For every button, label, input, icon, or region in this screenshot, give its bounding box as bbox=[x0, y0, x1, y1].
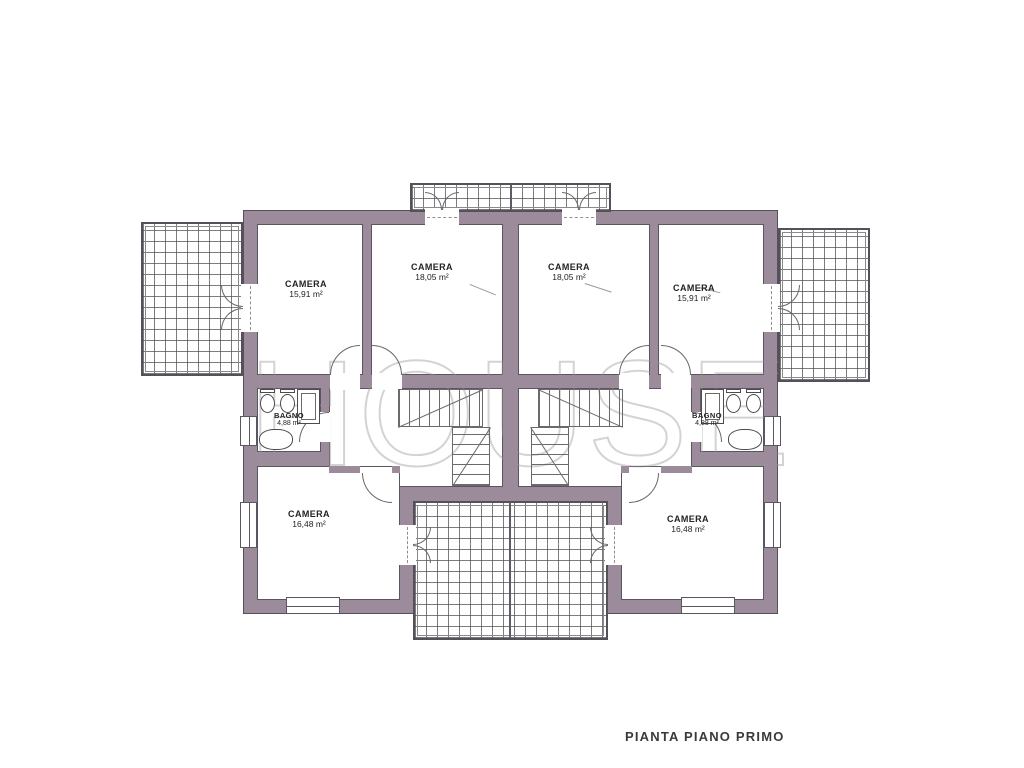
floor-plan-page: HOUSE bbox=[0, 0, 1024, 768]
room-name: BAGNO bbox=[692, 412, 722, 420]
door-opening-camera-tml bbox=[372, 373, 402, 390]
window-left-bagno bbox=[240, 416, 257, 446]
room-name: CAMERA bbox=[548, 262, 590, 272]
door-opening-top-balcony-left bbox=[425, 208, 459, 226]
door-opening-left-terrace bbox=[241, 284, 259, 332]
room-label-bagno-right: BAGNO 4,88 m² bbox=[692, 412, 722, 428]
room-name: BAGNO bbox=[274, 412, 304, 420]
room-name: CAMERA bbox=[288, 509, 330, 519]
room-label-camera-top-midleft: CAMERA 18,05 m² bbox=[411, 262, 453, 282]
room-name: CAMERA bbox=[411, 262, 453, 272]
door-opening-top-balcony-right bbox=[562, 208, 596, 226]
bidet-fixture bbox=[726, 394, 741, 413]
bidet-tank bbox=[280, 389, 295, 393]
room-label-bagno-left: BAGNO 4,88 m² bbox=[274, 412, 304, 428]
wall-segment bbox=[392, 466, 400, 473]
room-area: 4,88 m² bbox=[692, 420, 722, 428]
window-bottom-left-room bbox=[286, 597, 340, 614]
room-area: 18,05 m² bbox=[411, 272, 453, 282]
wall-segment bbox=[621, 466, 629, 473]
room-label-camera-top-right: CAMERA 15,91 m² bbox=[673, 283, 715, 303]
bidet-tank bbox=[726, 389, 741, 393]
door-opening-camera-tmr bbox=[619, 373, 649, 390]
wc-tank bbox=[260, 389, 275, 393]
terrace-right bbox=[778, 228, 870, 382]
door-opening-camera-tl bbox=[330, 373, 360, 390]
room-name: CAMERA bbox=[673, 283, 715, 293]
wc-fixture bbox=[260, 394, 275, 413]
wc-fixture bbox=[746, 394, 761, 413]
room-label-camera-bottom-left: CAMERA 16,48 m² bbox=[288, 509, 330, 529]
room-name: CAMERA bbox=[285, 279, 327, 289]
wc-tank bbox=[746, 389, 761, 393]
room-label-camera-top-midright: CAMERA 18,05 m² bbox=[548, 262, 590, 282]
door-opening-camera-tr bbox=[661, 373, 691, 390]
plan-caption: PIANTA PIANO PRIMO bbox=[625, 729, 785, 744]
window-left-bottom-room bbox=[240, 502, 257, 548]
room-area: 16,48 m² bbox=[288, 519, 330, 529]
window-right-bottom-room bbox=[764, 502, 781, 548]
bathtub-fixture bbox=[728, 429, 762, 450]
room-label-camera-top-left: CAMERA 15,91 m² bbox=[285, 279, 327, 299]
bathtub-fixture bbox=[259, 429, 293, 450]
window-right-bagno bbox=[764, 416, 781, 446]
room-area: 15,91 m² bbox=[285, 289, 327, 299]
room-area: 18,05 m² bbox=[548, 272, 590, 282]
balcony-top-divider bbox=[510, 184, 512, 210]
wall-segment bbox=[661, 466, 692, 473]
room-area: 16,48 m² bbox=[667, 524, 709, 534]
wall-segment bbox=[329, 466, 360, 473]
room-label-camera-bottom-right: CAMERA 16,48 m² bbox=[667, 514, 709, 534]
room-name: CAMERA bbox=[667, 514, 709, 524]
window-bottom-right-room bbox=[681, 597, 735, 614]
room-area: 15,91 m² bbox=[673, 293, 715, 303]
terrace-bottom-divider bbox=[509, 502, 511, 638]
room-area: 4,88 m² bbox=[274, 420, 304, 428]
